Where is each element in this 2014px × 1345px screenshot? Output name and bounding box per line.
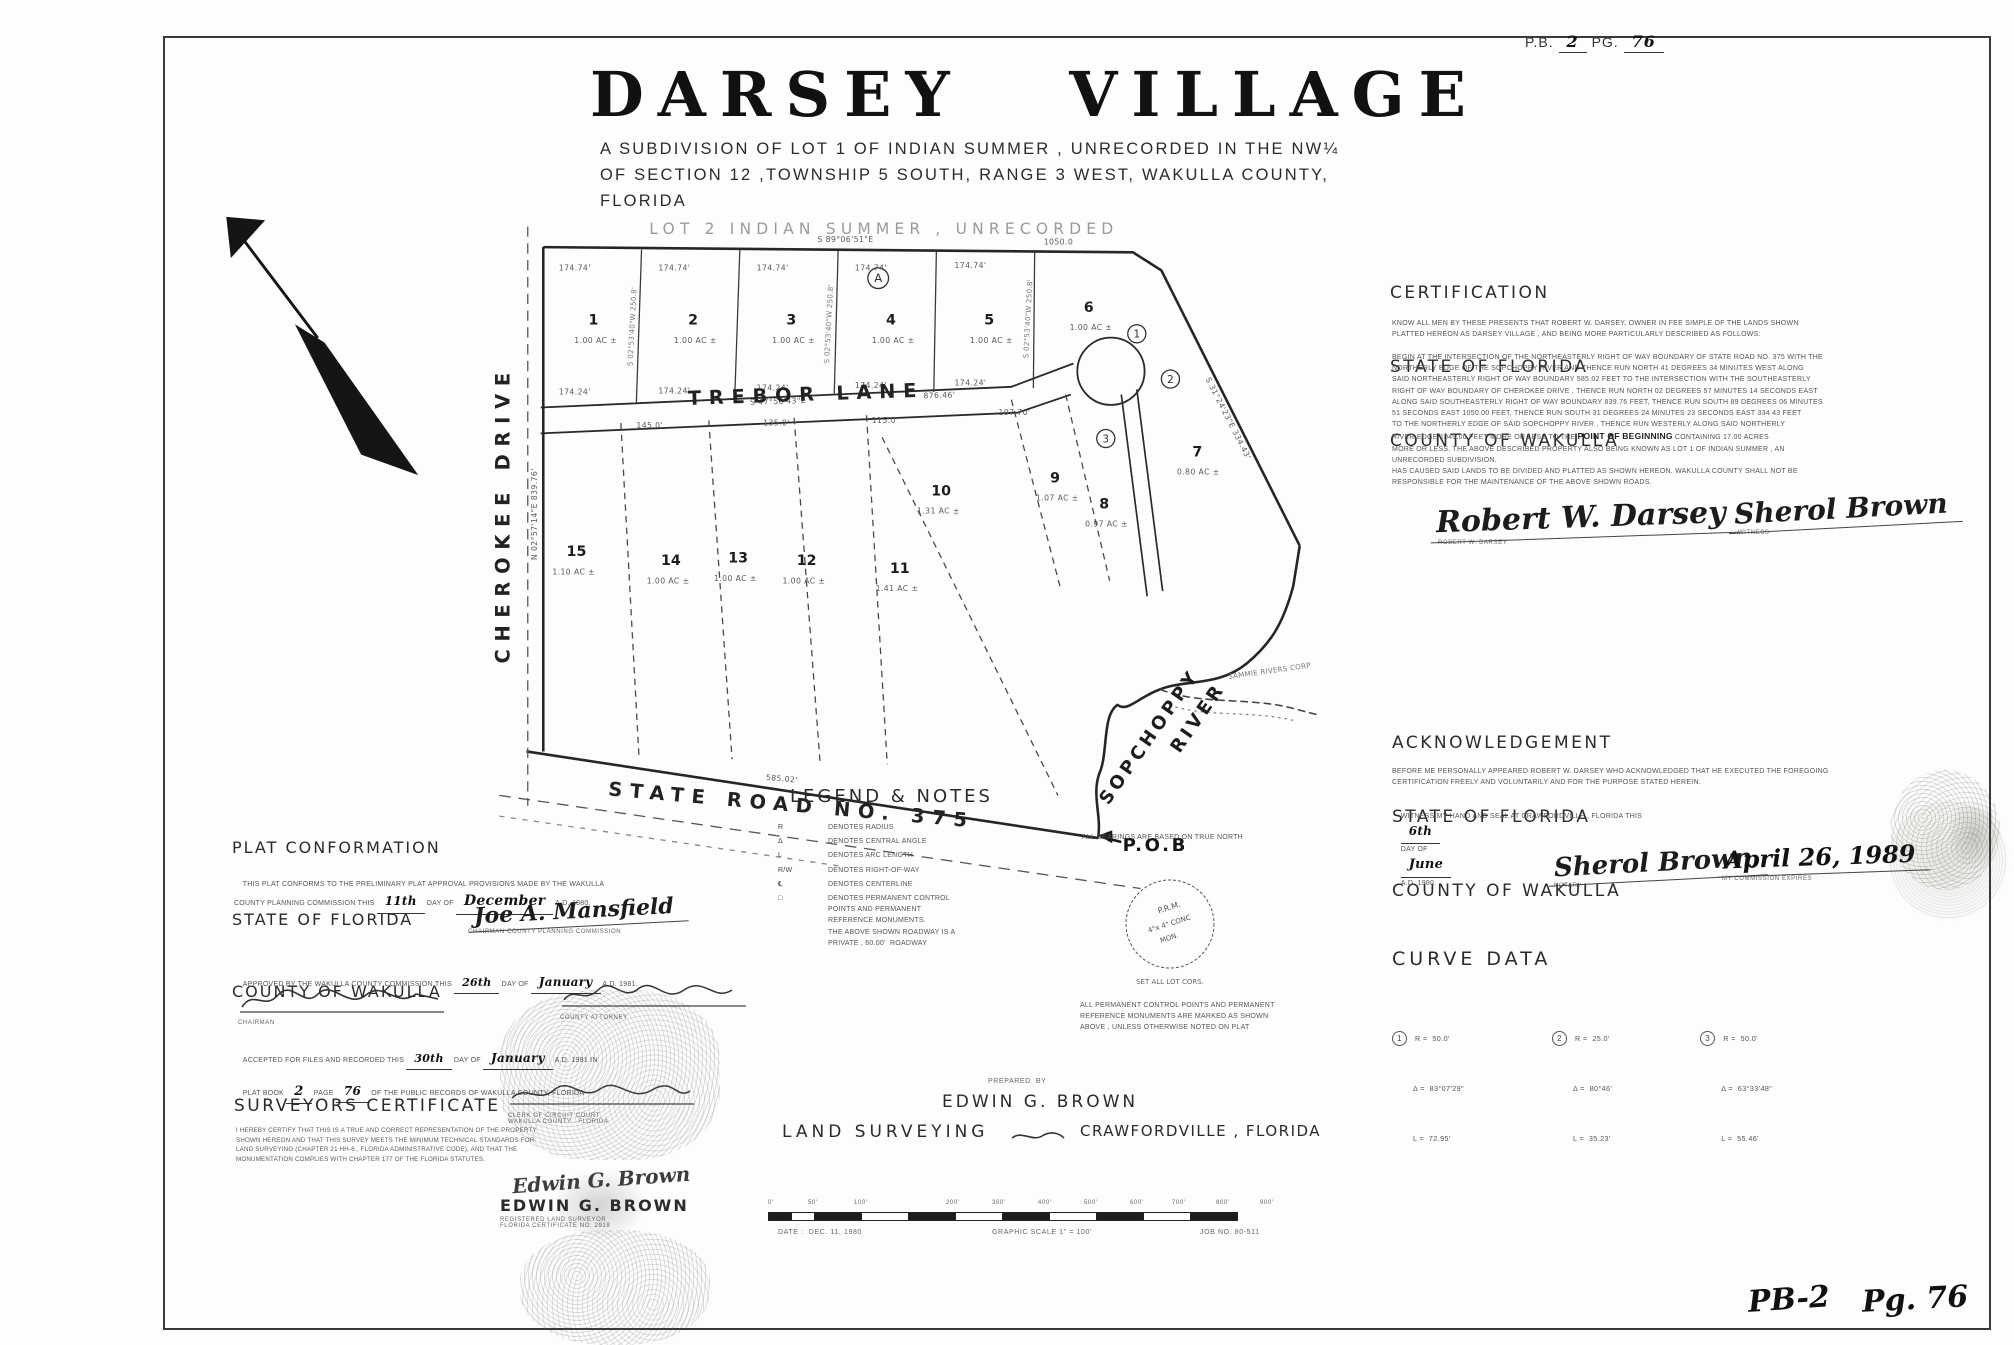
lot-10-acreage: 1.31 AC ± [917,507,960,516]
side-lot-bearings: S 02°53'40"W 250.8' S 02°53'40"W 250.8' … [626,279,1035,366]
northeast-bearing: S 31°24'23"E 334.43' [1204,376,1253,461]
dim-top-5: 174.74' [954,261,986,270]
scale-bar-captions: DATE : DEC. 11, 1980 GRAPHIC SCALE 1" = … [768,1229,1288,1243]
legend-text-l: DENOTES ARC LENGTH [828,850,913,861]
curve-1-number: 1 [1392,1031,1407,1046]
conformation-day-handwritten: 11th [377,892,425,913]
prepared-by-name: EDWIN G. BROWN [942,1092,1138,1112]
recorded-month-handwritten: January [483,1049,553,1070]
witness-signature-block: Sherol Brown WITNESS [1728,492,1962,536]
scale-bar-segments [768,1212,1288,1221]
witness-line-post: A.D. 1980. [1401,880,1437,887]
lot-9-acreage: 1.07 AC ± [1036,494,1079,503]
legend-text-delta: DENOTES CENTRAL ANGLE [828,836,927,847]
tick-800: 800' [1216,1200,1230,1206]
tilde-flourish [1008,1128,1068,1144]
curve-mark-2: 2 [1167,374,1174,386]
lot-acreages: 1.00 AC ± 1.00 AC ± 1.00 AC ± 1.00 AC ± … [552,323,1219,593]
prepared-by-label: PREPARED BY [988,1078,1046,1085]
tick-200: 200' [946,1200,960,1206]
side-bearing-3: S 02°53'40"W 250.8' [1021,279,1034,359]
lower-dim-3: 115.0' [872,416,899,425]
corner-page-handwritten: Pg. 76 [1861,1279,1969,1320]
lot-6-acreage: 1.00 AC ± [1070,323,1113,332]
lot-2-acreage: 1.00 AC ± [674,336,717,345]
witness-line-pre: WITNESS MY HAND AND SEAL AT CRAWFORDVILL… [1401,813,1642,820]
county-attorney-signature [560,980,750,1010]
lot-5-number: 5 [984,313,994,329]
cherokee-drive-label: CHEROKEE DRIVE [492,365,515,663]
curve-1-delta: Δ = 83°07'29" [1392,1081,1464,1098]
legend-item-monuments: □ DENOTES PERMANENT CONTROL POINTS AND P… [778,893,955,949]
dim-top-2: 174.74' [658,263,690,272]
lot-1-number: 1 [589,313,599,329]
lot-4-acreage: 1.00 AC ± [872,336,915,345]
dim-mid-1: 174.24' [559,388,591,397]
top-bearing: S 89°06'51"E [817,235,873,244]
pb-value-handwritten: 2 [1559,32,1587,53]
legend-list: R DENOTES RADIUS Δ DENOTES CENTRAL ANGLE… [778,822,955,949]
monument-detail-diagram: P.R.M. 4"x 4" CONC MON. SET ALL LOT CORS… [1090,868,1250,998]
recorded-day-handwritten: 30th [406,1050,451,1070]
dim-mid-2: 174.24' [658,386,690,395]
surveyor-certificate-number: FLORIDA CERTIFICATE NO. 2918 [500,1223,689,1229]
curve-1-length: L = 72.95' [1392,1131,1464,1148]
tick-600: 600' [1130,1200,1144,1206]
lower-dim-4: 107.70' [998,408,1030,417]
corner-plat-reference: PB-2 Pg. 76 [1748,1282,1968,1317]
adjacent-lot-label: LOT 2 INDIAN SUMMER , UNRECORDED [649,220,1118,238]
lot-15-acreage: 1.10 AC ± [552,567,595,576]
graphic-scale-bar: 0' 50' 100' 200' 300' 400' 500' 600' 700… [768,1200,1288,1243]
conformation-title: PLAT CONFORMATION [232,836,442,860]
graphic-scale-caption: GRAPHIC SCALE 1" = 100' [992,1229,1092,1236]
curve-3: 3R = 50.0' Δ = 63°33'48" L = 55.46' [1700,998,1772,1180]
planning-chairman-signature-block: Joe A. Mansfield CHAIRMAN COUNTY PLANNIN… [468,898,688,935]
curve-2-delta: Δ = 80°46' [1552,1081,1612,1098]
curve-3-number: 3 [1700,1031,1715,1046]
legend-symbol-l: L [778,850,824,861]
certification-title: CERTIFICATION [1390,281,1619,306]
dim-top-4: 174.74' [855,263,887,272]
private-drive-lines [1121,389,1162,596]
recorded-mid: DAY OF [452,1057,483,1064]
certification-body-pre: BEGIN AT THE INTERSECTION OF THE NORTHEA… [1392,354,1823,441]
legend-symbol-cl: ℄ [778,879,824,890]
witness-line-mid: DAY OF [1401,846,1428,853]
legend-symbol-monument: □ [778,893,824,949]
side-bearing-2: S 02°53'40"W 250.8' [822,284,835,364]
scale-tick-labels: 0' 50' 100' 200' 300' 400' 500' 600' 700… [768,1200,1288,1212]
planning-chairman-signature: Joe A. Mansfield [467,892,688,932]
tick-900: 900' [1260,1200,1274,1206]
clerk-signature-block: CLERK OF CIRCUIT COURT WAKULLA COUNTY , … [508,1080,698,1125]
county-attorney-label: COUNTY ATTORNEY [560,1015,750,1021]
surveyor-certificate-body: I HEREBY CERTIFY THAT THIS IS A TRUE AND… [236,1126,716,1164]
lot-1-acreage: 1.00 AC ± [574,336,617,345]
lot-8-acreage: 0.97 AC ± [1085,519,1128,528]
curve-1: 1R = 50.0' Δ = 83°07'29" L = 72.95' [1392,998,1464,1180]
west-bearing: N 02°57'14"E 839.76' [530,468,539,560]
title-subtitle-line2: OF SECTION 12 ,TOWNSHIP 5 SOUTH, RANGE 3… [600,166,1329,185]
conformation-body-mid: DAY OF [425,900,456,907]
lot-7-acreage: 0.80 AC ± [1177,468,1220,477]
county-chairman-signature [238,985,448,1015]
lot-10-number: 10 [931,483,951,499]
legend-text-r: DENOTES RADIUS [828,822,894,833]
approved-mid: DAY OF [499,981,530,988]
lot-9-number: 9 [1050,470,1060,486]
point-of-beginning-text: POINT OF BEGINNING [1578,431,1673,441]
owner-signature: Robert W. Darsey [1429,495,1740,544]
acknowledgement-body: BEFORE ME PERSONALLY APPEARED ROBERT W. … [1392,766,1952,788]
legend-heading: LEGEND & NOTES [790,786,993,807]
recorded-post: A.D. 1981 IN [553,1057,598,1064]
tick-0: 0' [768,1200,774,1206]
curve-1-radius: R = 50.0' [1415,1034,1450,1043]
plat-document-sheet: P.B. 2 PG. 76 DARSEY VILLAGE A SUBDIVISI… [0,0,2014,1345]
lot-15-number: 15 [567,544,587,560]
surveyor-signature-block: Edwin G. Brown [512,1168,690,1192]
lot-2-number: 2 [688,313,698,329]
lot-11-acreage: 1.41 AC ± [876,584,919,593]
curve-3-delta: Δ = 63°33'48" [1700,1081,1772,1098]
recorded-pre: ACCEPTED FOR FILES AND RECORDED THIS [243,1057,407,1064]
legend-text-cl: DENOTES CENTERLINE [828,879,913,890]
dim-mid-5: 174.24' [954,379,986,388]
lot-3-number: 3 [786,313,796,329]
lower-dim-2: 135.0' [763,419,790,428]
road-distance: 585.02' [766,773,799,785]
adjoiner-corp-label: SAMMIE RIVERS CORP [1228,660,1312,681]
clerk-label: CLERK OF CIRCUIT COURT WAKULLA COUNTY , … [508,1113,698,1125]
prepared-by-service: LAND SURVEYING [782,1122,988,1142]
lot-7-number: 7 [1192,445,1202,461]
monument-corners-label: SET ALL LOT CORS. [1136,978,1204,986]
curve-2-number: 2 [1552,1031,1567,1046]
lot-8-number: 8 [1099,496,1109,512]
pg-label: PG. [1592,34,1619,50]
north-arrow [205,210,435,490]
legend-symbol-rw: R/W [778,865,824,876]
lane-distance: 876.46' [923,390,955,400]
cul-de-sac [1077,338,1144,405]
acknowledgement-title: ACKNOWLEDGEMENT [1392,731,1621,756]
tick-50: 50' [808,1200,818,1206]
surveyor-certificate-heading: SURVEYORS CERTIFICATE [234,1096,501,1116]
tick-700: 700' [1172,1200,1186,1206]
legend-item-rw: R/W DENOTES RIGHT-OF-WAY [778,865,955,876]
page-title: DARSEY VILLAGE [590,58,1480,131]
lot-12-acreage: 1.00 AC ± [783,576,826,585]
legend-item-radius: R DENOTES RADIUS [778,822,955,833]
plat-book-reference: P.B. 2 PG. 76 [1525,32,1664,53]
surveyor-name-block: EDWIN G. BROWN REGISTERED LAND SURVEYOR … [500,1196,689,1229]
curve-2-length: L = 35.23' [1552,1131,1612,1148]
approved-day-handwritten: 26th [454,974,499,994]
lower-lot-dividers [621,395,1110,796]
monument-note: ALL PERMANENT CONTROL POINTS AND PERMANE… [1080,1000,1275,1034]
county-attorney-signature-block: COUNTY ATTORNEY [560,980,750,1021]
notary-seal-stamp [1888,800,2008,920]
lot-14-acreage: 1.00 AC ± [647,576,690,585]
prepared-by-location: CRAWFORDVILLE , FLORIDA [1080,1122,1321,1140]
curve-3-length: L = 55.46' [1700,1131,1772,1148]
curve-mark-1: 1 [1134,329,1141,341]
curve-2: 2R = 25.0' Δ = 80°46' L = 35.23' [1552,998,1612,1180]
survey-date: DATE : DEC. 11, 1980 [778,1229,862,1236]
bearings-note: ALL BEARINGS ARE BASED ON TRUE NORTH [1082,832,1243,843]
witness-month-handwritten: June [1401,855,1451,878]
curve-data-heading: CURVE DATA [1392,948,1551,970]
lot-3-acreage: 1.00 AC ± [772,336,815,345]
lot-14-number: 14 [661,553,681,569]
top-lot-frontages: 174.74' 174.74' 174.74' 174.74' 174.74' [559,261,987,273]
job-number: JOB NO. 80-511 [1200,1229,1260,1236]
corner-book-handwritten: PB-2 [1747,1279,1831,1320]
monument-size-label: 4"x 4" CONC [1147,913,1192,934]
pb-label: P.B. [1525,34,1554,50]
curve-data-table: 1R = 50.0' Δ = 83°07'29" L = 72.95' 2R =… [1392,998,1772,1180]
legend-text-rw: DENOTES RIGHT-OF-WAY [828,865,920,876]
tick-400: 400' [1038,1200,1052,1206]
tick-300: 300' [992,1200,1006,1206]
monument-prm-label: P.R.M. [1157,900,1182,916]
lot-11-number: 11 [890,561,910,577]
owner-signature-block: Robert W. Darsey ROBERT W. DARSEY [1430,500,1740,546]
curve-mark-3: 3 [1102,433,1109,445]
legend-text-monument: DENOTES PERMANENT CONTROL POINTS AND PER… [828,893,955,949]
lot-5-acreage: 1.00 AC ± [970,336,1013,345]
lot-4-number: 4 [886,313,896,329]
dim-top-3: 174.74' [757,263,789,272]
side-bearing-1: S 02°53'40"W 250.8' [626,287,639,367]
county-chairman-signature-block: CHAIRMAN [238,985,448,1026]
trebor-lane-label: TREBOR LANE [687,379,924,410]
legend-item-centerline: ℄ DENOTES CENTERLINE [778,879,955,890]
monument-mon-label: MON. [1159,931,1180,944]
legend-item-arc: L DENOTES ARC LENGTH [778,850,955,861]
title-subtitle-line1: A SUBDIVISION OF LOT 1 OF INDIAN SUMMER … [600,140,1339,159]
legend-item-delta: Δ DENOTES CENTRAL ANGLE [778,836,955,847]
lot-12-number: 12 [797,553,817,569]
tick-500: 500' [1084,1200,1098,1206]
block-mark-a: A [874,271,882,285]
top-distance: 1050.0 [1044,238,1073,247]
county-chairman-label: CHAIRMAN [238,1020,448,1026]
witness-signature: Sherol Brown [1727,486,1962,534]
clerk-signature [508,1080,698,1108]
lot-13-acreage: 1.00 AC ± [714,574,757,583]
dim-top-1: 174.74' [559,263,591,272]
certification-description: BEGIN AT THE INTERSECTION OF THE NORTHEA… [1392,352,1967,489]
legend-symbol-delta: Δ [778,836,824,847]
curve-2-radius: R = 25.0' [1575,1034,1610,1043]
lower-dim-1: 145.0' [636,421,663,430]
lot-6-number: 6 [1084,300,1094,316]
pg-value-handwritten: 76 [1624,32,1664,53]
tick-100: 100' [854,1200,868,1206]
certification-intro: KNOW ALL MEN BY THESE PRESENTS THAT ROBE… [1392,318,1952,340]
witness-day-handwritten: 6th [1401,822,1440,843]
surveyor-name: EDWIN G. BROWN [500,1196,689,1215]
certification-body-post: CONTAINING 17.00 ACRES MORE OR LESS. THE… [1392,434,1798,486]
curve-3-radius: R = 50.0' [1723,1034,1758,1043]
lot-13-number: 13 [728,551,748,567]
legend-symbol-r: R [778,822,824,833]
